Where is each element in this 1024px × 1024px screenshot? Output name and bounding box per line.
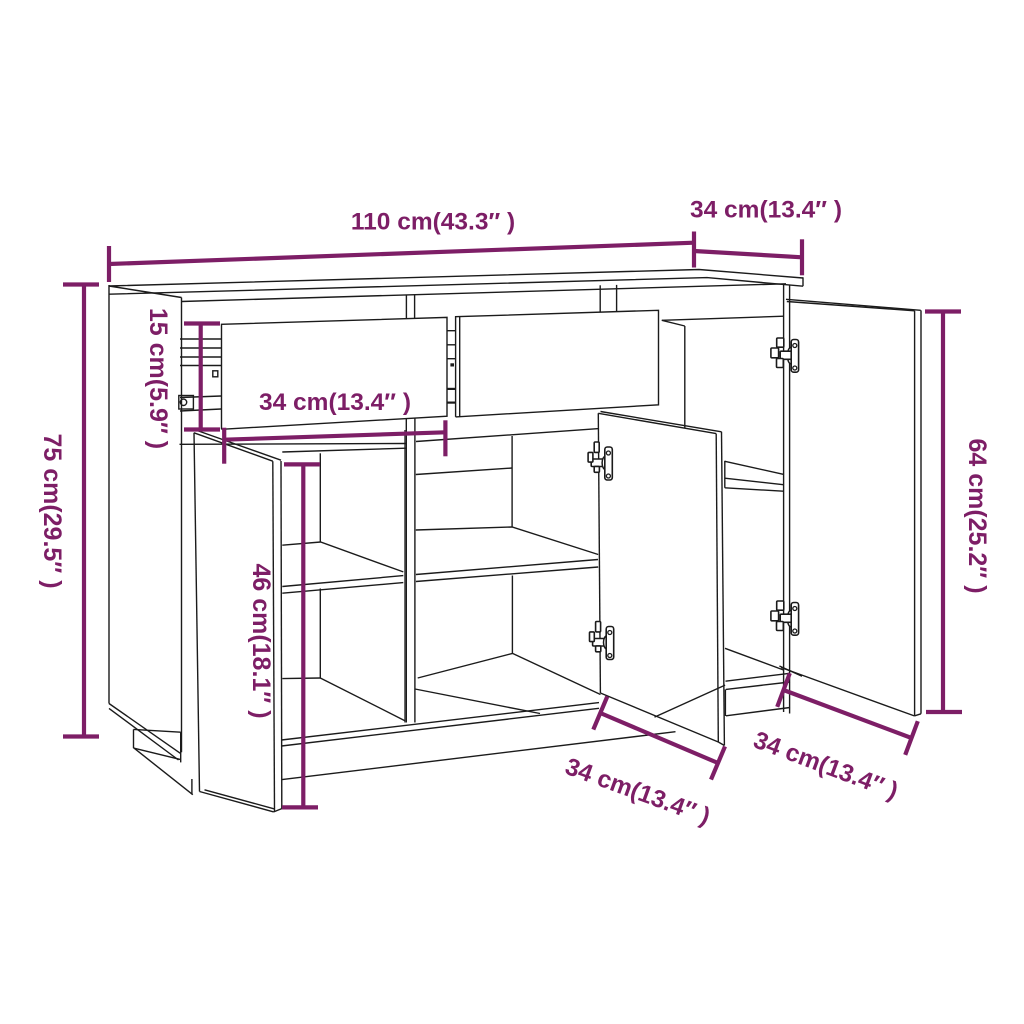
svg-text:110 cm(43.3″ ): 110 cm(43.3″ ) bbox=[351, 209, 515, 236]
svg-text:46 cm(18.1″ ): 46 cm(18.1″ ) bbox=[247, 563, 275, 718]
svg-text:34 cm(13.4″ ): 34 cm(13.4″ ) bbox=[259, 389, 411, 416]
svg-text:64 cm(25.2″ ): 64 cm(25.2″ ) bbox=[963, 438, 991, 593]
svg-text:75 cm(29.5″ ): 75 cm(29.5″ ) bbox=[38, 433, 66, 588]
svg-text:15 cm(5.9″ ): 15 cm(5.9″ ) bbox=[144, 308, 172, 449]
svg-text:34 cm(13.4″ ): 34 cm(13.4″ ) bbox=[690, 197, 842, 224]
